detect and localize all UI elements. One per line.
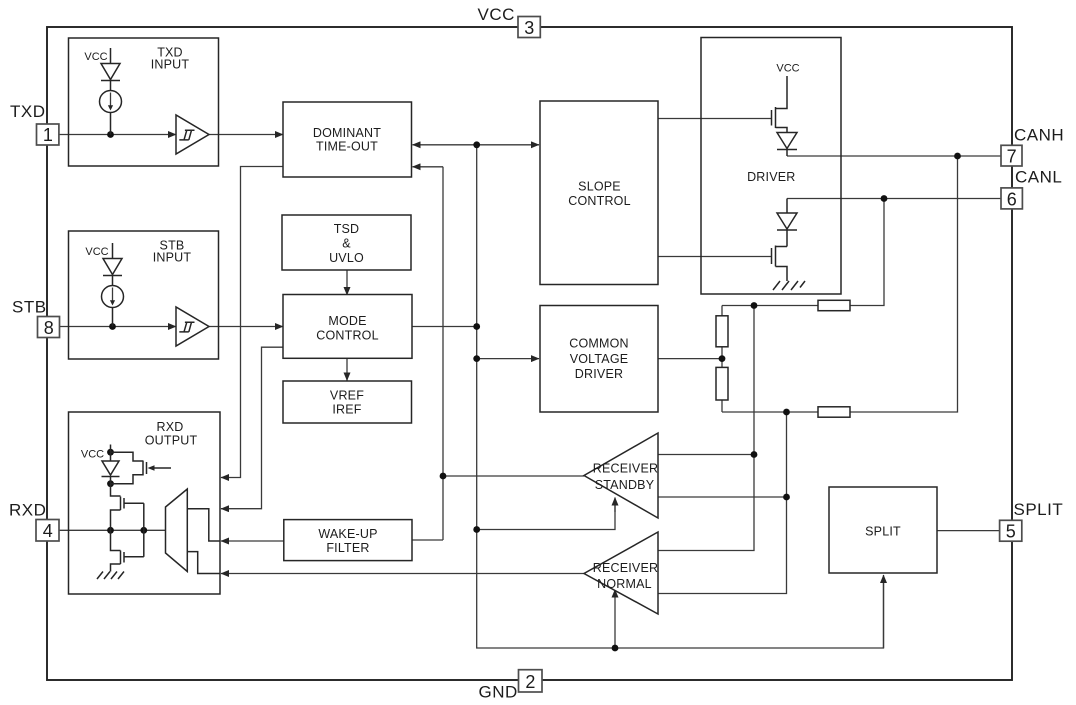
svg-text:NORMAL: NORMAL <box>597 577 652 591</box>
svg-text:DOMINANT: DOMINANT <box>313 126 381 140</box>
svg-text:5: 5 <box>1006 522 1016 542</box>
svg-text:COMMON: COMMON <box>569 337 629 351</box>
svg-text:TIME-OUT: TIME-OUT <box>316 140 378 154</box>
svg-text:RECEIVER: RECEIVER <box>593 561 659 575</box>
svg-text:VCC: VCC <box>776 63 799 75</box>
svg-text:UVLO: UVLO <box>329 251 364 265</box>
svg-text:7: 7 <box>1007 147 1017 167</box>
svg-text:4: 4 <box>43 521 53 541</box>
svg-text:RXD: RXD <box>157 420 184 434</box>
svg-text:WAKE-UP: WAKE-UP <box>318 527 377 541</box>
svg-text:VCC: VCC <box>81 449 104 461</box>
svg-text:GND: GND <box>479 683 518 702</box>
svg-text:SPLIT: SPLIT <box>1014 500 1064 519</box>
svg-text:CANH: CANH <box>1014 126 1064 145</box>
svg-text:DRIVER: DRIVER <box>747 170 795 184</box>
svg-text:VREF: VREF <box>330 389 364 403</box>
svg-text:OUTPUT: OUTPUT <box>145 434 198 448</box>
svg-text:VCC: VCC <box>85 246 108 258</box>
svg-text:TXD: TXD <box>10 102 46 121</box>
svg-text:MODE: MODE <box>328 314 366 328</box>
svg-text:STANDBY: STANDBY <box>595 478 655 492</box>
svg-text:3: 3 <box>524 18 534 38</box>
svg-text:TSD: TSD <box>334 222 360 236</box>
svg-text:2: 2 <box>525 672 535 692</box>
svg-text:DRIVER: DRIVER <box>575 367 623 381</box>
svg-text:RXD: RXD <box>9 501 46 520</box>
svg-text:VCC: VCC <box>478 5 515 24</box>
svg-text:CANL: CANL <box>1015 168 1062 187</box>
svg-text:CONTROL: CONTROL <box>568 194 631 208</box>
svg-text:1: 1 <box>43 125 53 145</box>
svg-text:FILTER: FILTER <box>326 541 369 555</box>
svg-text:STB: STB <box>12 298 47 317</box>
svg-text:&: & <box>342 237 351 251</box>
svg-text:INPUT: INPUT <box>153 251 192 265</box>
svg-text:8: 8 <box>44 318 54 338</box>
svg-text:CONTROL: CONTROL <box>316 329 379 343</box>
svg-text:RECEIVER: RECEIVER <box>593 462 659 476</box>
svg-text:6: 6 <box>1007 190 1017 210</box>
svg-text:VCC: VCC <box>84 51 107 63</box>
svg-text:INPUT: INPUT <box>151 58 190 72</box>
svg-text:IREF: IREF <box>332 403 361 417</box>
svg-text:SPLIT: SPLIT <box>865 525 901 539</box>
svg-text:VOLTAGE: VOLTAGE <box>570 352 629 366</box>
svg-text:SLOPE: SLOPE <box>578 180 621 194</box>
